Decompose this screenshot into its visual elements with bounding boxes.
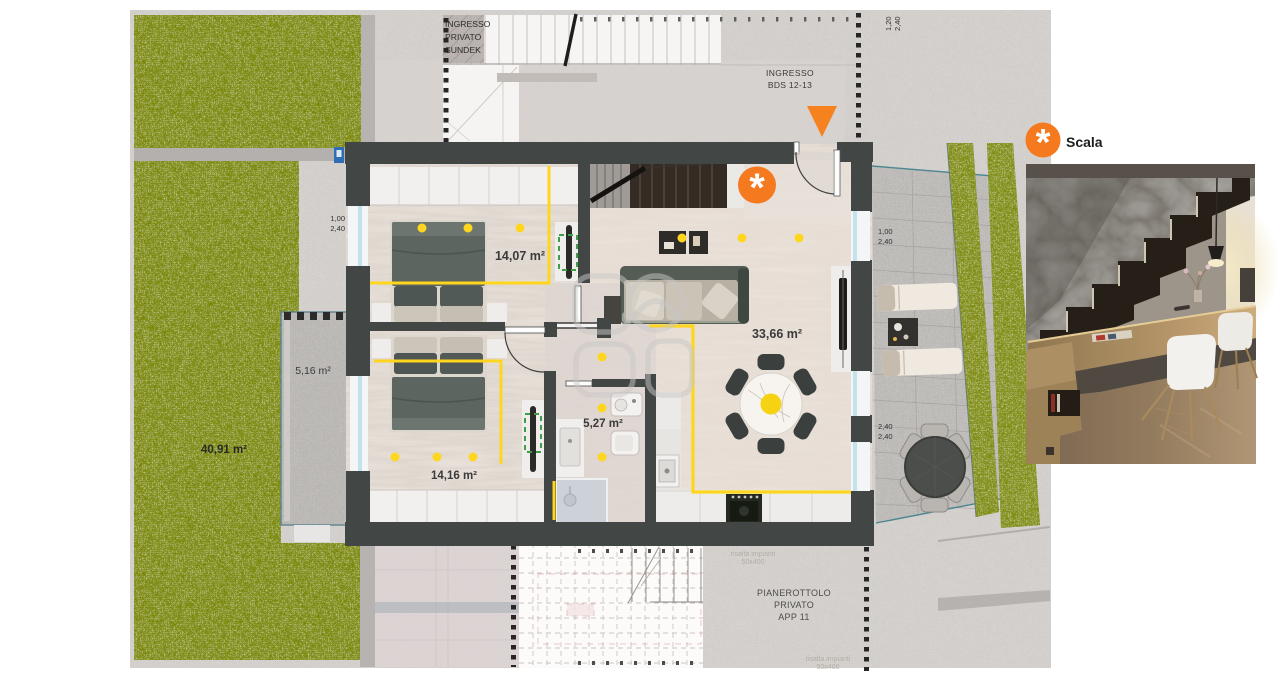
svg-text:2,40: 2,40 xyxy=(878,432,893,441)
svg-text:5,27 m²: 5,27 m² xyxy=(583,418,623,430)
svg-text:2,40: 2,40 xyxy=(330,224,345,233)
svg-text:APP 11: APP 11 xyxy=(778,612,810,622)
svg-text:risalta impianti: risalta impianti xyxy=(806,656,851,663)
svg-text:PIANEROTTOLO: PIANEROTTOLO xyxy=(757,588,831,598)
svg-text:1,20: 1,20 xyxy=(884,16,893,31)
svg-text:risalta impianti: risalta impianti xyxy=(731,551,776,558)
svg-text:2,40: 2,40 xyxy=(878,422,893,431)
svg-text:PRIVATO: PRIVATO xyxy=(445,32,482,42)
svg-text:33,66 m²: 33,66 m² xyxy=(752,327,802,341)
svg-text:PRIVATO: PRIVATO xyxy=(774,600,814,610)
svg-text:1,00: 1,00 xyxy=(330,214,345,223)
svg-text:50x400: 50x400 xyxy=(817,664,840,671)
svg-text:INGRESSO: INGRESSO xyxy=(445,19,491,29)
svg-text:1,00: 1,00 xyxy=(878,227,893,236)
svg-text:5,16 m²: 5,16 m² xyxy=(295,365,331,377)
svg-text:14,07 m²: 14,07 m² xyxy=(495,249,545,263)
svg-text:2,40: 2,40 xyxy=(878,237,893,246)
svg-text:*: * xyxy=(1036,122,1051,164)
svg-text:40,91 m²: 40,91 m² xyxy=(201,444,247,456)
svg-text:14,16 m²: 14,16 m² xyxy=(431,470,477,482)
svg-text:*: * xyxy=(749,166,765,210)
svg-text:Scala: Scala xyxy=(1066,134,1103,150)
svg-text:2,40: 2,40 xyxy=(893,16,902,31)
svg-text:SUNDEK: SUNDEK xyxy=(445,45,481,55)
svg-text:50x400: 50x400 xyxy=(742,559,765,566)
svg-text:BDS 12-13: BDS 12-13 xyxy=(768,80,812,90)
svg-text:INGRESSO: INGRESSO xyxy=(766,68,814,78)
